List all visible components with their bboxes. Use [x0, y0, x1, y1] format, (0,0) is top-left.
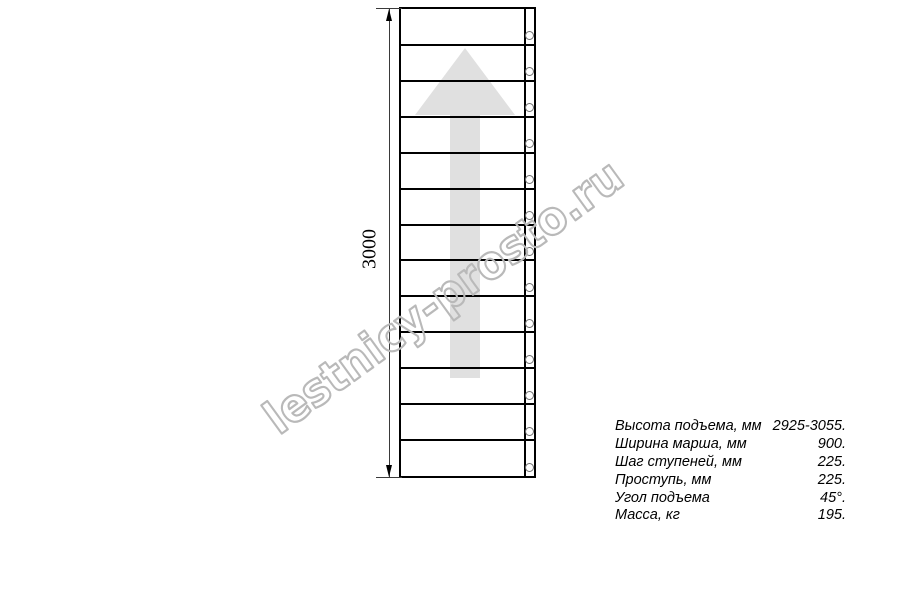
spec-table: Высота подъема, мм2925-3055.Ширина марша…: [615, 418, 846, 525]
spec-row: Угол подъема45°.: [615, 490, 846, 508]
step-line: [401, 188, 534, 190]
bolt-circle: [525, 211, 534, 220]
drawing-canvas: 3000 Высота подъема, мм2925-3055.Ширина …: [0, 0, 900, 600]
bolt-circle: [525, 139, 534, 148]
spec-row: Проступь, мм225.: [615, 472, 846, 490]
spec-label: Высота подъема, мм: [615, 418, 762, 436]
bolt-circle: [525, 103, 534, 112]
dimension-extension-bottom: [376, 477, 402, 478]
step-line: [401, 44, 534, 46]
spec-row: Высота подъема, мм2925-3055.: [615, 418, 846, 436]
bolt-circle: [525, 355, 534, 364]
spec-value: 225.: [818, 454, 846, 472]
dimension-line: [389, 9, 390, 477]
spec-label: Ширина марша, мм: [615, 436, 747, 454]
spec-row: Шаг ступеней, мм225.: [615, 454, 846, 472]
step-line: [401, 295, 534, 297]
step-line: [401, 80, 534, 82]
spec-label: Проступь, мм: [615, 472, 711, 490]
bolt-circle: [525, 427, 534, 436]
dimension-arrowhead-top-icon: [386, 9, 392, 21]
bolt-circle: [525, 391, 534, 400]
spec-value: 2925-3055.: [773, 418, 846, 436]
step-line: [401, 116, 534, 118]
bolt-circle: [525, 283, 534, 292]
dimension-label: 3000: [359, 229, 382, 269]
bolt-circle: [525, 247, 534, 256]
spec-value: 225.: [818, 472, 846, 490]
spec-value: 195.: [818, 507, 846, 525]
bolt-circle: [525, 463, 534, 472]
bolt-circle: [525, 175, 534, 184]
step-line: [401, 439, 534, 441]
spec-value: 900.: [818, 436, 846, 454]
spec-row: Масса, кг195.: [615, 507, 846, 525]
step-line: [401, 367, 534, 369]
step-line: [401, 403, 534, 405]
stair-plan: [399, 7, 536, 478]
step-line: [401, 331, 534, 333]
step-line: [401, 259, 534, 261]
spec-value: 45°.: [820, 490, 846, 508]
spec-row: Ширина марша, мм900.: [615, 436, 846, 454]
step-line: [401, 152, 534, 154]
spec-label: Угол подъема: [615, 490, 710, 508]
spec-label: Шаг ступеней, мм: [615, 454, 742, 472]
spec-label: Масса, кг: [615, 507, 680, 525]
bolt-circle: [525, 319, 534, 328]
dimension-arrowhead-bottom-icon: [386, 465, 392, 477]
step-line: [401, 224, 534, 226]
bolt-circle: [525, 67, 534, 76]
bolt-circle: [525, 31, 534, 40]
